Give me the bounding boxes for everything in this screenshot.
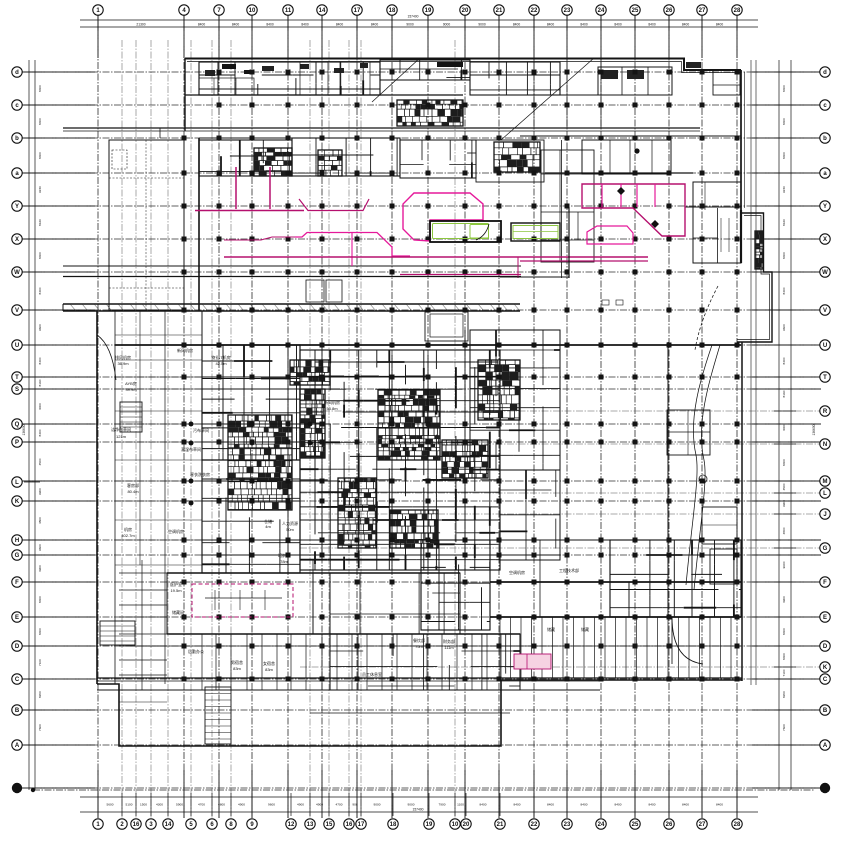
svg-text:25: 25 [632, 822, 639, 828]
svg-text:13: 13 [307, 822, 314, 828]
svg-text:1500: 1500 [140, 803, 147, 807]
svg-text:K: K [15, 499, 20, 505]
svg-text:8400: 8400 [782, 118, 786, 125]
svg-text:客衣洗衣房: 客衣洗衣房 [190, 471, 210, 477]
svg-text:潮湿布草间: 潮湿布草间 [181, 446, 201, 452]
svg-text:28: 28 [734, 822, 741, 828]
svg-text:D: D [823, 644, 828, 650]
svg-text:餐饮部: 餐饮部 [413, 637, 425, 643]
svg-text:财务部: 财务部 [443, 638, 455, 644]
svg-text:G: G [15, 553, 20, 559]
svg-text:17: 17 [354, 8, 361, 14]
svg-text:14: 14 [165, 822, 172, 828]
svg-text:W: W [14, 270, 20, 276]
svg-text:4700: 4700 [336, 803, 343, 807]
svg-text:8400: 8400 [581, 803, 588, 807]
svg-text:402.7m: 402.7m [121, 533, 135, 538]
svg-text:26: 26 [666, 8, 673, 14]
svg-text:83m: 83m [233, 666, 241, 671]
svg-text:8400: 8400 [580, 22, 588, 26]
svg-text:20: 20 [463, 822, 470, 828]
svg-text:U: U [823, 343, 827, 349]
svg-text:9600: 9600 [38, 324, 42, 331]
svg-text:3900: 3900 [38, 565, 42, 572]
svg-text:18: 18 [390, 822, 397, 828]
svg-text:8400: 8400 [782, 287, 786, 294]
svg-text:22: 22 [531, 822, 538, 828]
svg-text:Q: Q [15, 422, 20, 428]
svg-text:A: A [823, 743, 828, 749]
svg-text:20: 20 [462, 8, 469, 14]
svg-text:7600: 7600 [38, 724, 42, 731]
svg-text:9000: 9000 [374, 803, 381, 807]
svg-text:7100: 7100 [782, 669, 786, 676]
svg-text:AYB房: AYB房 [125, 380, 137, 386]
svg-text:8400: 8400 [38, 357, 42, 364]
svg-text:15: 15 [326, 822, 333, 828]
svg-text:b: b [15, 136, 19, 142]
svg-text:d: d [15, 70, 19, 76]
svg-text:G: G [823, 546, 828, 552]
svg-text:157400: 157400 [412, 808, 423, 812]
svg-text:d: d [823, 70, 827, 76]
svg-text:42.5m: 42.5m [215, 361, 227, 366]
svg-text:19.5m: 19.5m [170, 588, 182, 593]
svg-text:女宿舍: 女宿舍 [263, 660, 275, 666]
svg-text:储藏: 储藏 [547, 626, 555, 632]
svg-text:8400: 8400 [782, 459, 786, 466]
svg-text:L: L [15, 480, 19, 486]
svg-text:8200: 8200 [38, 691, 42, 698]
svg-text:8400: 8400 [336, 22, 344, 26]
svg-text:5900: 5900 [176, 803, 183, 807]
svg-text:U: U [15, 343, 19, 349]
svg-text:8400: 8400 [38, 287, 42, 294]
svg-text:物业IT机房: 物业IT机房 [211, 354, 231, 360]
svg-text:900: 900 [352, 803, 357, 807]
svg-text:工程技术部: 工程技术部 [559, 567, 579, 573]
svg-text:8400: 8400 [301, 22, 309, 26]
svg-text:8400: 8400 [782, 152, 786, 159]
svg-text:8400: 8400 [371, 22, 379, 26]
svg-text:80.4m: 80.4m [127, 489, 139, 494]
svg-text:K: K [823, 665, 828, 671]
svg-text:9000: 9000 [406, 22, 414, 26]
svg-text:19: 19 [425, 8, 432, 14]
svg-text:F: F [15, 580, 19, 586]
svg-text:75m: 75m [415, 644, 423, 649]
svg-text:9000: 9000 [408, 803, 415, 807]
svg-text:10: 10 [249, 8, 256, 14]
svg-text:8400: 8400 [648, 22, 656, 26]
svg-text:19: 19 [426, 822, 433, 828]
svg-text:8200: 8200 [782, 691, 786, 698]
svg-text:F: F [823, 580, 827, 586]
svg-text:E: E [823, 615, 827, 621]
svg-text:9000: 9000 [478, 22, 486, 26]
svg-text:R: R [823, 409, 828, 415]
svg-text:8160: 8160 [782, 219, 786, 226]
svg-text:T: T [15, 375, 19, 381]
svg-text:8400: 8400 [682, 803, 689, 807]
svg-text:8400: 8400 [198, 22, 206, 26]
svg-text:J: J [823, 512, 826, 518]
svg-text:4800: 4800 [218, 803, 225, 807]
svg-text:5600: 5600 [107, 803, 114, 807]
svg-text:9000: 9000 [443, 22, 451, 26]
svg-text:4500: 4500 [38, 458, 42, 465]
svg-text:1100: 1100 [457, 803, 464, 807]
svg-text:8400: 8400 [38, 596, 42, 603]
svg-text:H: H [15, 538, 19, 544]
svg-text:C: C [15, 677, 20, 683]
svg-text:培训室: 培训室 [278, 552, 290, 558]
svg-text:S: S [15, 387, 19, 393]
svg-text:23: 23 [564, 822, 571, 828]
svg-text:9240: 9240 [782, 186, 786, 193]
svg-text:8160: 8160 [38, 219, 42, 226]
svg-text:11: 11 [285, 8, 292, 14]
svg-text:8400: 8400 [782, 85, 786, 92]
svg-text:8400: 8400 [716, 803, 723, 807]
svg-text:36.9m: 36.9m [117, 361, 129, 366]
svg-text:3000: 3000 [38, 403, 42, 410]
svg-text:8400: 8400 [547, 22, 555, 26]
svg-text:B: B [823, 708, 828, 714]
svg-text:W: W [822, 270, 828, 276]
svg-text:B: B [15, 708, 20, 714]
svg-text:9600: 9600 [38, 544, 42, 551]
svg-text:9600: 9600 [782, 561, 786, 568]
svg-text:12: 12 [288, 822, 295, 828]
svg-text:14: 14 [319, 8, 326, 14]
svg-text:新风机房: 新风机房 [324, 399, 340, 405]
svg-text:25: 25 [632, 8, 639, 14]
svg-text:9240: 9240 [38, 186, 42, 193]
svg-text:8400: 8400 [615, 803, 622, 807]
svg-text:3000: 3000 [782, 424, 786, 431]
svg-text:8400: 8400 [782, 252, 786, 259]
svg-text:8400: 8400 [232, 22, 240, 26]
svg-text:C: C [823, 677, 828, 683]
svg-text:Y: Y [823, 204, 827, 210]
svg-text:A: A [15, 743, 20, 749]
svg-text:24: 24 [598, 822, 605, 828]
svg-text:8400: 8400 [38, 85, 42, 92]
svg-text:17: 17 [358, 822, 365, 828]
svg-text:8400: 8400 [682, 22, 690, 26]
svg-text:28: 28 [734, 8, 741, 14]
svg-text:7100: 7100 [38, 659, 42, 666]
svg-text:39.9m: 39.9m [125, 387, 137, 392]
svg-text:136600: 136600 [22, 424, 26, 435]
svg-text:8400: 8400 [614, 22, 622, 26]
svg-text:V: V [15, 308, 19, 314]
svg-text:8400: 8400 [782, 628, 786, 635]
svg-text:8400: 8400 [514, 803, 521, 807]
svg-text:8160: 8160 [38, 379, 42, 386]
svg-text:洁净布草间: 洁净布草间 [111, 426, 131, 432]
svg-text:22: 22 [531, 8, 538, 14]
svg-text:121m: 121m [116, 434, 127, 439]
svg-text:83m: 83m [265, 667, 273, 672]
svg-text:23: 23 [564, 8, 571, 14]
svg-text:53.8m: 53.8m [326, 406, 338, 411]
svg-text:9600: 9600 [782, 324, 786, 331]
svg-text:机房: 机房 [124, 526, 132, 532]
svg-text:4900: 4900 [316, 803, 323, 807]
svg-text:8400: 8400 [782, 653, 786, 660]
svg-text:L: L [823, 491, 827, 497]
svg-text:T: T [823, 375, 827, 381]
svg-text:136600: 136600 [812, 424, 816, 435]
svg-text:8400: 8400 [38, 118, 42, 125]
svg-text:18: 18 [389, 8, 396, 14]
svg-text:111m: 111m [444, 645, 454, 650]
svg-text:8400: 8400 [649, 803, 656, 807]
svg-text:8400: 8400 [547, 803, 554, 807]
svg-text:空调机房: 空调机房 [509, 569, 525, 575]
svg-text:4700: 4700 [198, 803, 205, 807]
svg-text:4500: 4500 [782, 483, 786, 490]
svg-text:8400: 8400 [266, 22, 274, 26]
svg-text:78m: 78m [280, 559, 288, 564]
svg-text:员工休息室: 员工休息室 [362, 671, 382, 677]
svg-text:16: 16 [133, 822, 140, 828]
svg-text:50m: 50m [286, 527, 294, 532]
svg-text:8400: 8400 [38, 152, 42, 159]
svg-text:人力资源: 人力资源 [282, 520, 298, 526]
svg-text:8400: 8400 [38, 628, 42, 635]
svg-text:3900: 3900 [782, 596, 786, 603]
svg-text:21300: 21300 [136, 22, 145, 26]
svg-text:储藏: 储藏 [581, 626, 589, 632]
svg-text:21: 21 [496, 8, 503, 14]
svg-text:7900: 7900 [439, 803, 446, 807]
svg-text:157400: 157400 [407, 15, 418, 19]
svg-text:排风机房: 排风机房 [115, 354, 131, 360]
svg-text:8400: 8400 [480, 803, 487, 807]
svg-text:V: V [823, 308, 827, 314]
svg-text:新风机房: 新风机房 [177, 347, 193, 353]
svg-text:24: 24 [598, 8, 605, 14]
svg-text:4900: 4900 [297, 803, 304, 807]
svg-text:27: 27 [699, 8, 706, 14]
svg-text:27: 27 [699, 822, 706, 828]
svg-text:10: 10 [452, 822, 459, 828]
svg-text:16: 16 [346, 822, 353, 828]
svg-text:空调机房: 空调机房 [168, 528, 184, 534]
svg-text:后勤办公: 后勤办公 [188, 648, 204, 654]
svg-text:9900: 9900 [38, 488, 42, 495]
svg-text:26: 26 [666, 822, 673, 828]
svg-text:M: M [823, 479, 828, 485]
svg-text:医护室: 医护室 [170, 581, 182, 587]
svg-text:8400: 8400 [38, 252, 42, 259]
svg-text:8160: 8160 [782, 390, 786, 397]
svg-text:污布草间: 污布草间 [193, 427, 209, 433]
svg-text:4300: 4300 [156, 803, 163, 807]
svg-text:X: X [823, 237, 827, 243]
svg-text:4800: 4800 [38, 517, 42, 524]
svg-text:21: 21 [497, 822, 504, 828]
svg-text:b: b [823, 136, 827, 142]
svg-text:X: X [15, 237, 19, 243]
svg-text:7600: 7600 [782, 724, 786, 731]
svg-text:储藏间: 储藏间 [172, 609, 184, 615]
svg-text:8400: 8400 [513, 22, 521, 26]
svg-text:4900: 4900 [238, 803, 245, 807]
svg-text:8400: 8400 [782, 357, 786, 364]
svg-text:Y: Y [15, 204, 19, 210]
svg-text:客房部: 客房部 [127, 482, 139, 488]
svg-text:P: P [15, 440, 19, 446]
svg-text:E: E [15, 615, 19, 621]
svg-text:4800: 4800 [782, 527, 786, 534]
svg-text:8400: 8400 [38, 429, 42, 436]
svg-text:9900: 9900 [782, 500, 786, 507]
svg-text:5100: 5100 [126, 803, 133, 807]
svg-text:8400: 8400 [716, 22, 724, 26]
svg-text:9600: 9600 [268, 803, 275, 807]
svg-text:N: N [823, 442, 827, 448]
svg-text:D: D [15, 644, 20, 650]
svg-text:男宿舍: 男宿舍 [231, 659, 243, 665]
svg-text:4m: 4m [265, 524, 271, 529]
